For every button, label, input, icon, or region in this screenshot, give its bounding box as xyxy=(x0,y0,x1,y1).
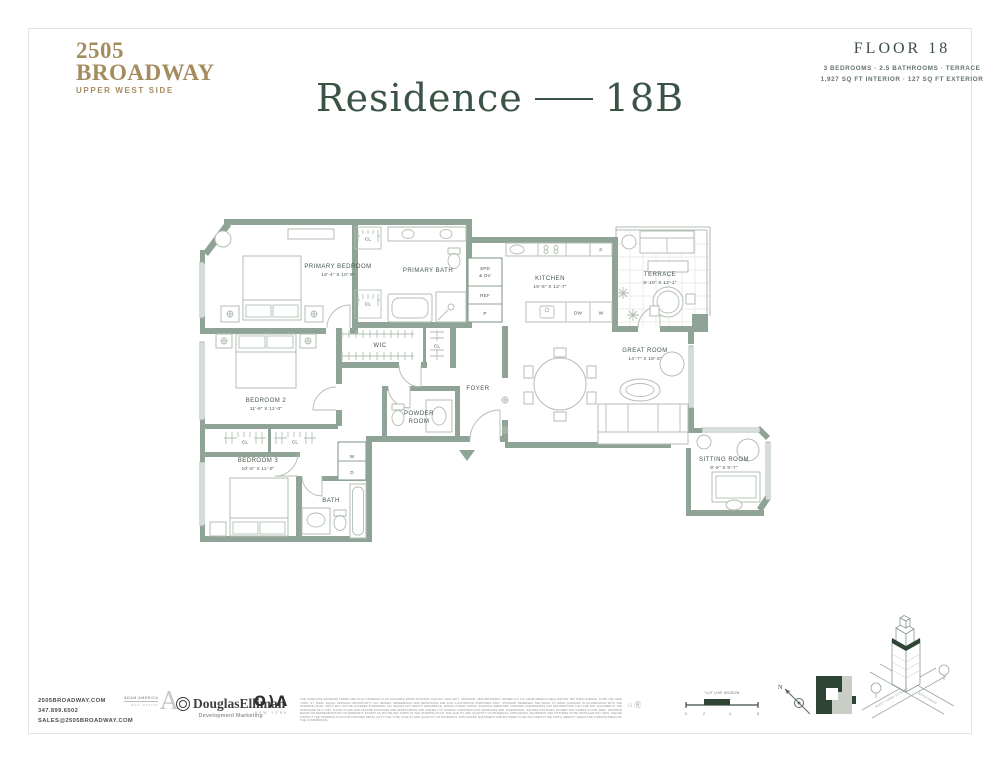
bedroom2-furniture xyxy=(216,334,316,388)
dw-label: DW xyxy=(574,311,583,316)
terrace-dims: 8'-10" X 12'-1" xyxy=(643,280,676,286)
brand-line1: 2505 xyxy=(76,40,215,62)
kitchen-fixtures xyxy=(468,243,612,322)
kitchen-dims: 15'-6" X 12'-7" xyxy=(533,284,566,290)
washer-label: W xyxy=(350,454,355,459)
cl-label-4: CL xyxy=(242,440,249,445)
terrace-label: TERRACE xyxy=(644,272,676,278)
adam-america-sub: REAL ESTATE xyxy=(124,703,158,707)
wic-label: WIC xyxy=(373,343,386,349)
kitchen-label: KITCHEN xyxy=(535,276,565,282)
primary-bedroom-label: PRIMARY BEDROOM xyxy=(304,264,371,270)
legal-disclaimer-text: THE COMPLETE OFFERING TERMS ARE IN AN OF… xyxy=(300,698,622,723)
adam-america-text: ADAM AMERICA REAL ESTATE xyxy=(124,696,158,707)
cl-label-1: CL xyxy=(365,237,372,242)
oda-logo: O)Λ NEW YORK xyxy=(254,694,289,715)
wine-label: W xyxy=(599,311,604,316)
great-room-label: GREAT ROOM xyxy=(622,348,667,354)
spd-ov-label-1: SPD xyxy=(480,266,491,271)
floor-spec-line1: 3 BEDROOMS · 2.5 BATHROOMS · TERRACE xyxy=(792,63,1000,74)
phone-number: 347.899.6502 xyxy=(38,707,133,717)
oda-sub: NEW YORK xyxy=(254,711,289,715)
floor-title: FLOOR 18 xyxy=(792,40,1000,58)
cl-label-3: CL xyxy=(434,344,441,349)
residence-title-left: Residence xyxy=(316,76,523,120)
floorplan-sheet: 2505 BROADWAY UPPER WEST SIDE FLOOR 18 3… xyxy=(0,0,1000,758)
pantry-top-label: P xyxy=(599,248,602,253)
spd-ov-label-2: & OV xyxy=(479,273,492,278)
great-room-dims: 14'-7" X 18'-3" xyxy=(628,356,661,362)
compass-north-label: N xyxy=(778,684,783,691)
scale-bar: *LOT LINE WINDOW 0 2 4 8 xyxy=(682,686,768,720)
primary-bath-fixtures xyxy=(388,227,466,322)
bedroom2-dims: 11'-8" X 11'-0" xyxy=(250,406,283,412)
scale-tick-3: 8 xyxy=(757,712,759,716)
doors xyxy=(275,305,660,496)
title-dash xyxy=(535,98,593,100)
bedroom3-label: BEDROOM 3 xyxy=(238,458,279,464)
bedroom2-label: BEDROOM 2 xyxy=(246,398,287,404)
building-illustration: WEST 93RD STREET BROADWAY xyxy=(856,610,960,722)
foyer-label: FOYER xyxy=(466,386,489,392)
email-link[interactable]: SALES@2505BROADWAY.COM xyxy=(38,717,133,727)
residence-title-right: 18B xyxy=(605,76,684,120)
powder-room-label-2: ROOM xyxy=(409,419,430,425)
lot-line-note: *LOT LINE WINDOW xyxy=(704,691,739,695)
street-label-broadway: BROADWAY xyxy=(918,691,939,705)
oda-letters-icon: O)Λ xyxy=(254,694,289,710)
floor-plan: PRIMARY BEDROOM 18'-4" X 10'-9" PRIMARY … xyxy=(190,210,790,555)
sitting-room-furniture xyxy=(697,435,760,510)
scale-tick-2: 4 xyxy=(729,712,731,716)
scale-tick-0: 0 xyxy=(685,712,687,716)
compass-icon: N xyxy=(776,680,816,720)
great-room-furniture xyxy=(502,348,688,444)
bedroom3-dims: 10'-6" X 11'-0" xyxy=(242,466,275,472)
cl-label-5: CL xyxy=(292,440,299,445)
bath-label: BATH xyxy=(322,498,340,504)
scale-tick-1: 2 xyxy=(703,712,705,716)
sitting-room-label: SITTING ROOM xyxy=(699,457,749,463)
ref-label: REF xyxy=(480,293,490,298)
dryer-label: D xyxy=(350,470,354,475)
adam-america-logo: ADAM AMERICA REAL ESTATE A xyxy=(124,692,178,711)
page-title: Residence18B xyxy=(0,76,1000,120)
website-link[interactable]: 2505BROADWAY.COM xyxy=(38,697,133,707)
equal-housing-realtor-icons: ⌂Ⓡ xyxy=(628,700,643,710)
cl-label-2: CL xyxy=(365,302,372,307)
primary-bedroom-dims: 18'-4" X 10'-9" xyxy=(321,272,354,278)
adam-america-name: ADAM AMERICA xyxy=(124,696,158,702)
laundry-bath-fixtures xyxy=(302,442,366,538)
sitting-room-dims: 9'-5" X 9'-7" xyxy=(710,465,738,471)
douglas-elliman-icon xyxy=(176,697,190,711)
unit-key-plan xyxy=(814,672,860,718)
pantry-label: P xyxy=(483,311,486,316)
street-label-93rd: WEST 93RD STREET xyxy=(875,686,910,708)
powder-room-label-1: POWDER xyxy=(404,411,434,417)
contact-block: 2505BROADWAY.COM 347.899.6502 SALES@2505… xyxy=(38,697,133,727)
primary-bath-label: PRIMARY BATH xyxy=(403,268,453,274)
bedroom3-furniture xyxy=(210,478,288,536)
primary-bedroom-furniture xyxy=(215,229,334,322)
